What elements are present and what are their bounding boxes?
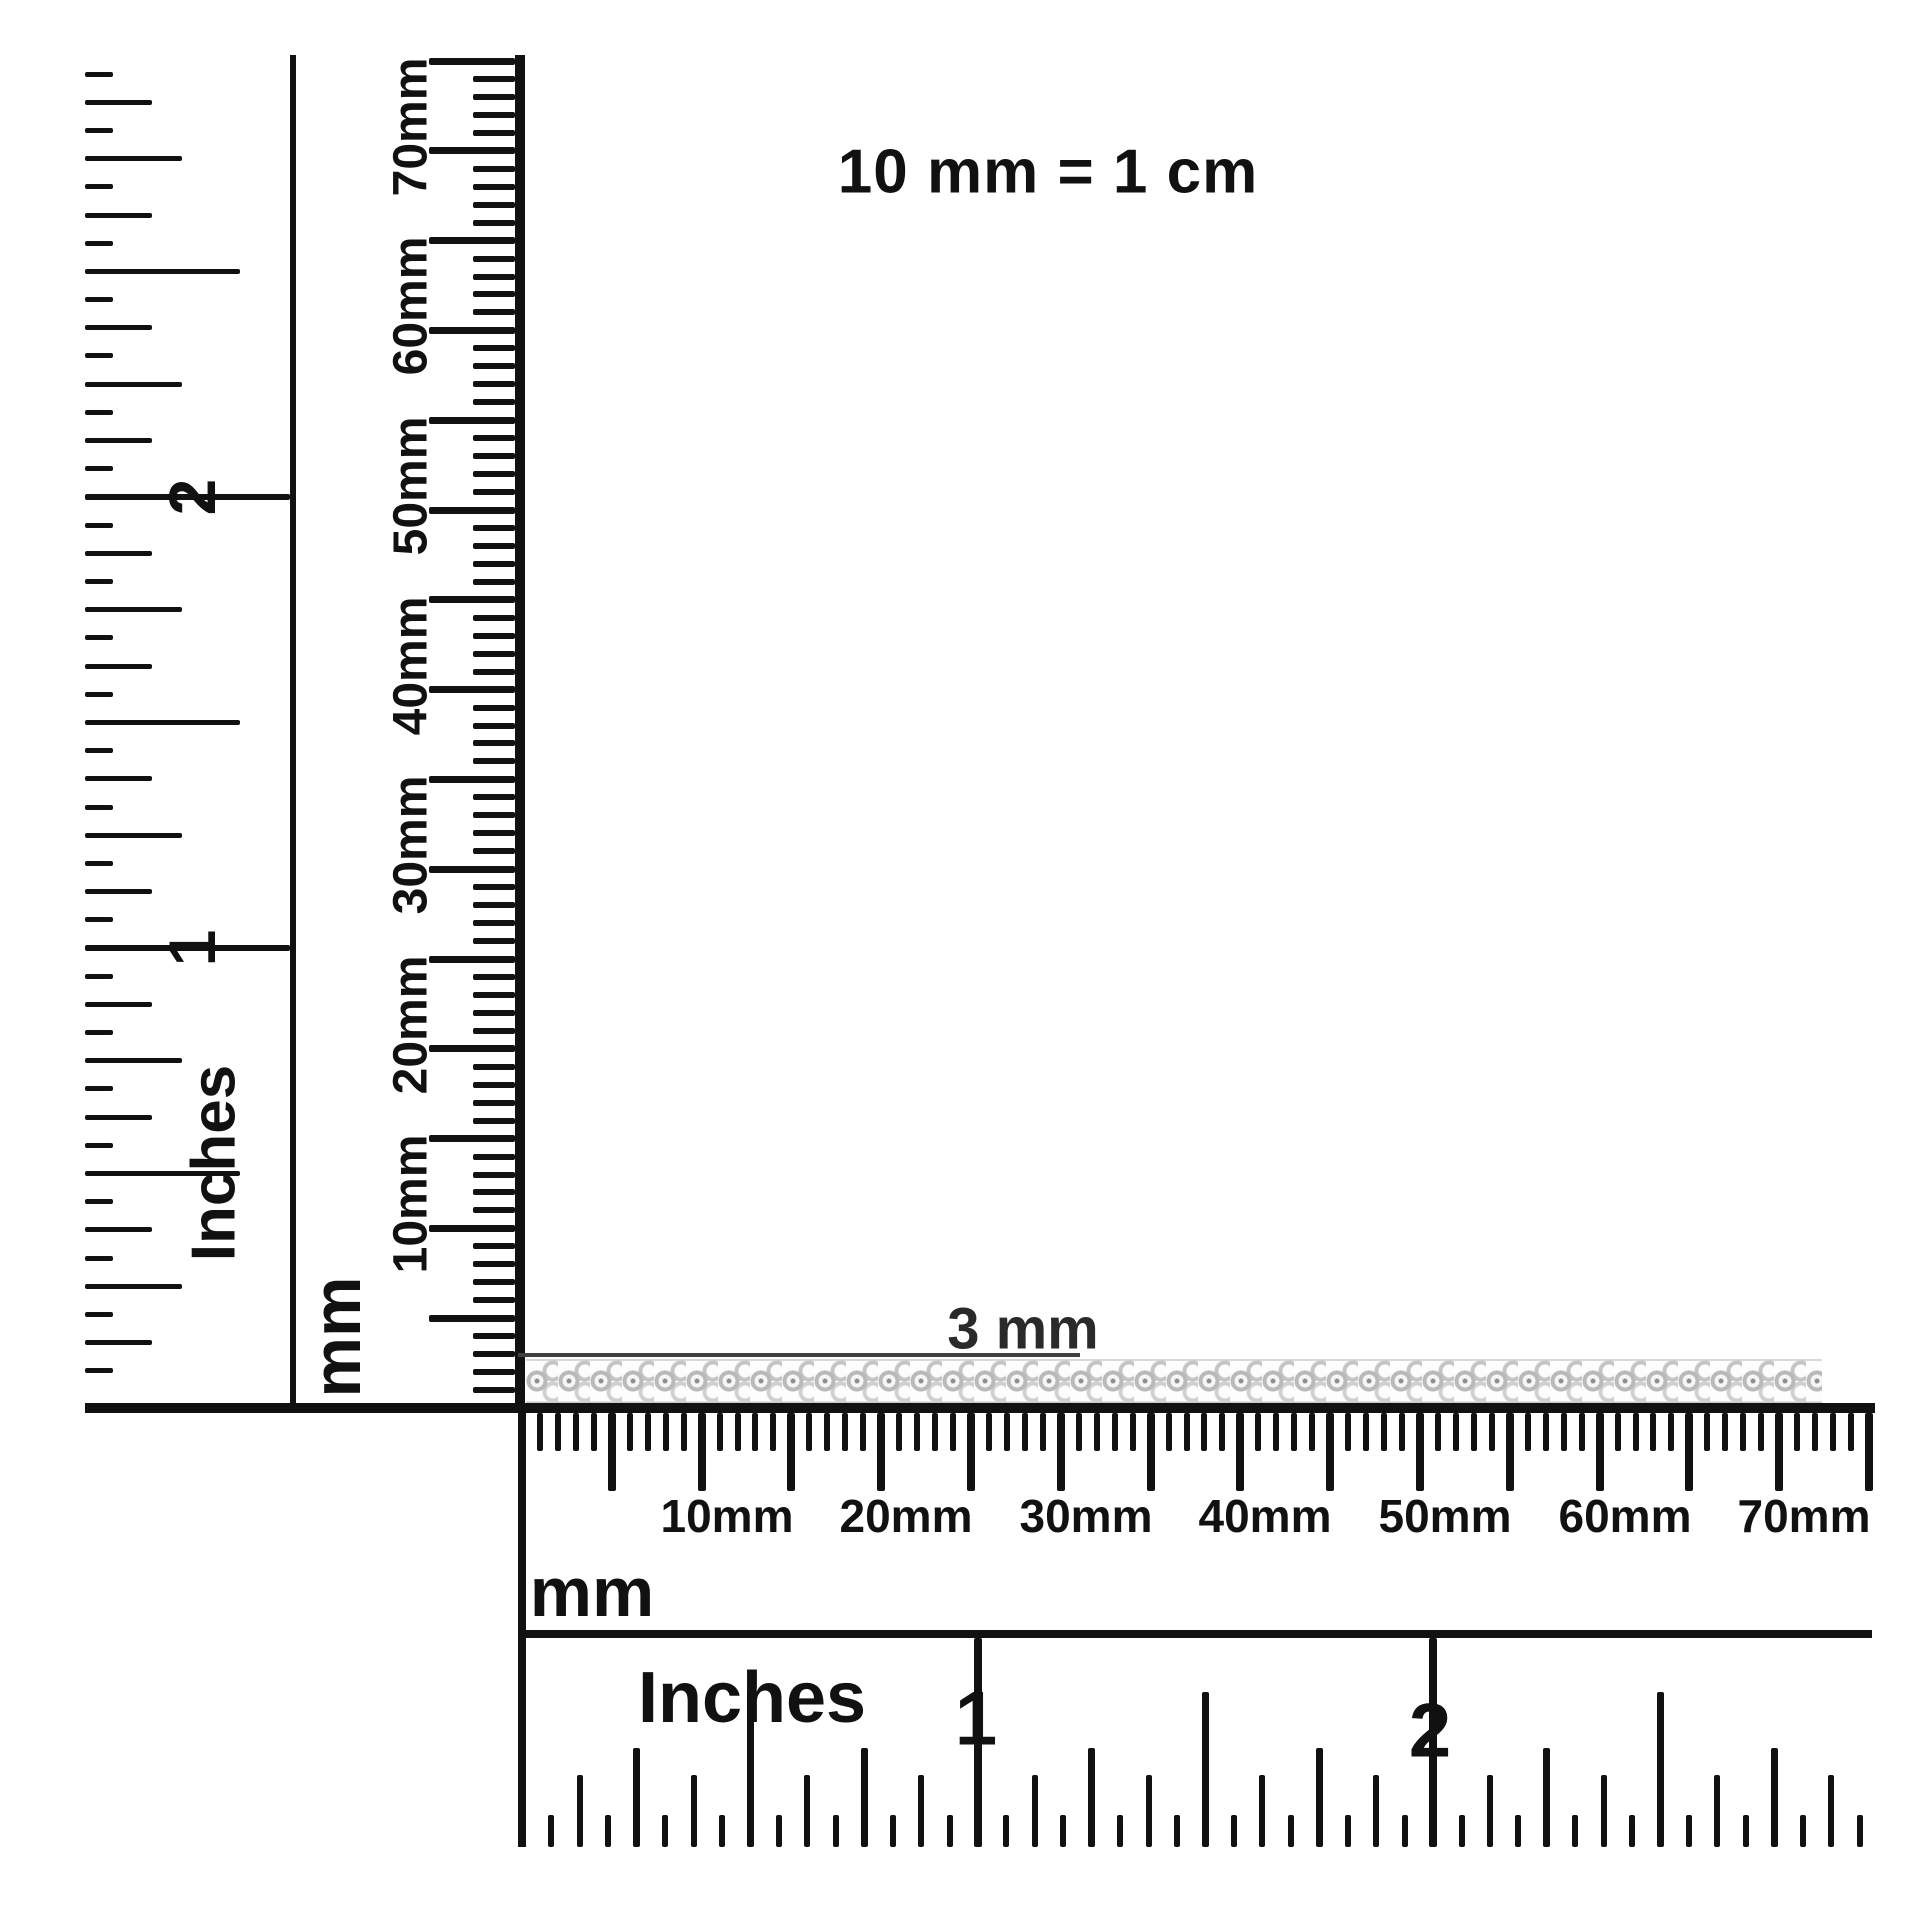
mm-tick-label: 20mm — [384, 956, 439, 1095]
mm-tick — [1309, 1413, 1315, 1451]
inch-tick — [691, 1775, 697, 1847]
mm-tick — [473, 705, 515, 711]
mm-tick — [1740, 1413, 1746, 1451]
inch-tick — [85, 1340, 152, 1345]
inch-tick — [85, 1030, 113, 1035]
mm-tick — [950, 1413, 956, 1451]
mm-tick-label: 10mm — [661, 1489, 794, 1543]
mm-tick — [473, 1154, 515, 1160]
inch-tick — [890, 1815, 896, 1847]
inch-tick — [918, 1775, 924, 1847]
horizontal-inch-ruler-edge — [522, 1630, 1872, 1638]
inch-tick — [1487, 1775, 1493, 1847]
inch-tick — [1032, 1775, 1038, 1847]
horizontal-inch-mark-1: 1 — [955, 1676, 997, 1763]
mm-tick — [473, 615, 515, 621]
mm-tick — [1022, 1413, 1028, 1451]
mm-tick — [1184, 1413, 1190, 1451]
inch-tick — [804, 1775, 810, 1847]
mm-tick — [473, 992, 515, 998]
mm-tick-label: 10mm — [384, 1135, 439, 1274]
mm-tick-label: 50mm — [1379, 1489, 1512, 1543]
inch-tick — [1515, 1815, 1521, 1847]
mm-tick — [473, 399, 515, 405]
mm-tick — [1112, 1413, 1118, 1451]
vertical-inch-ruler-edge — [290, 55, 296, 1404]
mm-tick — [1650, 1413, 1656, 1451]
mm-tick — [1219, 1413, 1225, 1451]
inch-tick — [1146, 1775, 1152, 1847]
mm-tick — [473, 1297, 515, 1303]
mm-tick — [1812, 1413, 1818, 1451]
inch-tick — [633, 1748, 640, 1847]
mm-tick — [932, 1413, 938, 1451]
mm-tick — [429, 58, 515, 65]
mm-tick — [1633, 1413, 1639, 1451]
inch-tick — [85, 776, 152, 781]
mm-tick — [473, 669, 515, 675]
mm-tick — [473, 220, 515, 226]
inch-tick — [85, 438, 152, 443]
inch-tick — [85, 720, 240, 725]
mm-tick — [1273, 1413, 1279, 1451]
inch-tick — [1402, 1815, 1408, 1847]
mm-tick — [591, 1413, 597, 1451]
inch-tick — [947, 1815, 953, 1847]
mm-tick — [1722, 1413, 1728, 1451]
mm-tick — [473, 1351, 515, 1357]
mm-tick — [967, 1413, 975, 1491]
mm-tick — [473, 453, 515, 459]
inch-tick — [85, 156, 182, 161]
mm-tick — [1399, 1413, 1405, 1451]
mm-tick — [698, 1413, 706, 1491]
mm-tick — [429, 1225, 515, 1232]
inch-tick — [85, 861, 113, 866]
mm-tick — [473, 489, 515, 495]
mm-tick — [473, 651, 515, 657]
inch-tick — [1572, 1815, 1578, 1847]
inch-tick — [1345, 1815, 1351, 1847]
inch-tick — [85, 1143, 113, 1148]
inch-tick — [85, 269, 240, 274]
inch-tick — [1174, 1815, 1180, 1847]
mm-tick — [473, 830, 515, 836]
mm-tick — [824, 1413, 830, 1451]
mm-tick — [752, 1413, 758, 1451]
mm-tick — [1471, 1413, 1477, 1451]
mm-tick-label: 20mm — [840, 1489, 973, 1543]
mm-tick — [1506, 1413, 1514, 1491]
mm-tick — [473, 381, 515, 387]
inch-tick — [85, 579, 113, 584]
mm-tick — [473, 543, 515, 549]
horizontal-mm-ruler-unit: mm — [530, 1552, 654, 1632]
mm-tick — [1830, 1413, 1836, 1451]
mm-tick — [1236, 1413, 1244, 1491]
mm-tick-label: 30mm — [1020, 1489, 1153, 1543]
mm-tick — [473, 920, 515, 926]
inch-tick — [1373, 1775, 1379, 1847]
inch-tick — [85, 1199, 113, 1204]
mm-tick — [787, 1413, 795, 1491]
mm-tick — [473, 274, 515, 280]
mm-tick — [473, 1118, 515, 1124]
mm-tick — [1416, 1413, 1424, 1491]
mm-tick — [914, 1413, 920, 1451]
inch-tick — [85, 1312, 113, 1317]
inch-tick — [85, 297, 113, 302]
mm-tick — [1076, 1413, 1082, 1451]
mm-tick — [1255, 1413, 1261, 1451]
mm-tick — [473, 76, 515, 82]
mm-tick-label: 60mm — [384, 237, 439, 376]
inch-tick — [1316, 1748, 1323, 1847]
mm-tick — [473, 1333, 515, 1339]
inch-tick — [85, 1284, 182, 1289]
mm-tick — [473, 633, 515, 639]
mm-tick — [1704, 1413, 1710, 1451]
mm-tick — [806, 1413, 812, 1451]
inch-tick — [85, 748, 113, 753]
mm-tick — [473, 291, 515, 297]
inch-tick — [85, 1115, 152, 1120]
mm-tick — [473, 1261, 515, 1267]
bracelet-width-label: 3 mm — [947, 1296, 1099, 1363]
mm-tick — [473, 256, 515, 262]
inch-tick — [85, 213, 152, 218]
inch-tick — [85, 551, 152, 556]
inch-tick — [662, 1815, 668, 1847]
mm-tick — [473, 561, 515, 567]
inch-tick — [85, 466, 113, 471]
vertical-mm-ruler-edge — [515, 55, 525, 1405]
mm-tick — [473, 974, 515, 980]
inch-tick — [1543, 1748, 1550, 1847]
inch-tick — [85, 1002, 152, 1007]
mm-tick — [1794, 1413, 1800, 1451]
inch-tick — [1003, 1815, 1009, 1847]
mm-tick — [429, 507, 515, 514]
mm-tick — [473, 1064, 515, 1070]
mm-tick — [1848, 1413, 1854, 1451]
mm-tick — [429, 866, 515, 873]
mm-tick — [429, 1315, 515, 1322]
mm-tick — [627, 1413, 633, 1451]
mm-tick — [1453, 1413, 1459, 1451]
jewelry-measurement-diagram: 10 mm = 1 cm 1 2 Inches 10mm20mm30mm40mm… — [0, 0, 1920, 1920]
inch-tick — [85, 523, 113, 528]
mm-tick — [1543, 1413, 1549, 1451]
inch-tick — [1743, 1815, 1749, 1847]
mm-tick — [429, 956, 515, 963]
mm-tick — [1345, 1413, 1351, 1451]
mm-tick — [1094, 1413, 1100, 1451]
mm-tick — [429, 417, 515, 424]
mm-tick — [1040, 1413, 1046, 1451]
mm-tick — [473, 1189, 515, 1195]
mm-tick — [986, 1413, 992, 1451]
mm-tick — [473, 1387, 515, 1393]
mm-tick — [473, 1279, 515, 1285]
mm-tick — [429, 686, 515, 693]
inch-tick — [548, 1815, 554, 1847]
mm-tick — [1561, 1413, 1567, 1451]
mm-tick-label: 50mm — [384, 417, 439, 556]
inch-tick — [719, 1815, 725, 1847]
mm-tick — [473, 94, 515, 100]
inch-tick — [1601, 1775, 1607, 1847]
mm-tick — [473, 848, 515, 854]
inch-tick — [1117, 1815, 1123, 1847]
inch-tick — [1629, 1815, 1635, 1847]
mm-tick-label: 40mm — [384, 597, 439, 736]
mm-tick — [473, 202, 515, 208]
mm-tick — [1596, 1413, 1604, 1491]
mm-tick — [896, 1413, 902, 1451]
mm-tick — [473, 1010, 515, 1016]
mm-tick — [681, 1413, 687, 1451]
mm-tick — [717, 1413, 723, 1451]
mm-tick-label: 30mm — [384, 776, 439, 915]
inch-tick — [85, 72, 113, 77]
mm-tick — [473, 1100, 515, 1106]
mm-tick — [473, 525, 515, 531]
mm-tick — [473, 130, 515, 136]
inch-tick — [85, 1058, 182, 1063]
mm-tick — [1363, 1413, 1369, 1451]
inch-tick — [85, 382, 182, 387]
inch-tick — [85, 353, 113, 358]
vertical-inch-mark-2: 2 — [154, 479, 230, 516]
mm-tick — [473, 902, 515, 908]
mm-tick — [770, 1413, 776, 1451]
mm-tick — [473, 435, 515, 441]
inch-tick — [85, 1086, 113, 1091]
inch-tick — [85, 325, 152, 330]
mm-tick — [1615, 1413, 1621, 1451]
mm-tick — [473, 345, 515, 351]
mm-tick — [1685, 1413, 1693, 1491]
inch-tick — [577, 1775, 583, 1847]
mm-tick-label: 60mm — [1559, 1489, 1692, 1543]
inch-tick — [85, 664, 152, 669]
mm-tick — [645, 1413, 651, 1451]
bottom-ruler-left-edge — [518, 1403, 526, 1847]
inch-tick — [85, 184, 113, 189]
inch-tick — [861, 1748, 868, 1847]
inch-tick — [1714, 1775, 1720, 1847]
inch-tick — [1828, 1775, 1834, 1847]
mm-tick — [608, 1413, 616, 1491]
mm-tick — [473, 363, 515, 369]
mm-tick — [860, 1413, 866, 1451]
mm-tick — [473, 723, 515, 729]
mm-tick — [473, 1172, 515, 1178]
mm-tick — [473, 1028, 515, 1034]
mm-tick — [429, 147, 515, 154]
mm-tick — [1435, 1413, 1441, 1451]
mm-tick — [429, 327, 515, 334]
mm-tick — [1865, 1413, 1873, 1491]
mm-tick — [1057, 1413, 1065, 1491]
scale-note: 10 mm = 1 cm — [838, 137, 1258, 208]
mm-tick — [473, 309, 515, 315]
inch-tick — [85, 917, 113, 922]
inch-tick — [1657, 1692, 1664, 1847]
mm-tick — [473, 579, 515, 585]
horizontal-inch-ruler-unit: Inches — [638, 1657, 866, 1739]
mm-tick — [473, 1207, 515, 1213]
mm-tick — [473, 758, 515, 764]
inch-tick — [1459, 1815, 1465, 1847]
mm-tick — [473, 938, 515, 944]
inch-tick — [1060, 1815, 1066, 1847]
mm-tick — [473, 112, 515, 118]
inch-tick — [85, 241, 113, 246]
mm-tick — [473, 166, 515, 172]
mm-tick-label: 40mm — [1199, 1489, 1332, 1543]
horizontal-inch-mark-2: 2 — [1409, 1688, 1451, 1775]
inch-tick — [85, 1368, 113, 1373]
mm-tick — [1381, 1413, 1387, 1451]
mm-tick — [1326, 1413, 1334, 1491]
inch-tick — [85, 1256, 113, 1261]
mm-tick — [1166, 1413, 1172, 1451]
inch-tick — [85, 410, 113, 415]
mm-tick — [1147, 1413, 1155, 1491]
inch-tick — [85, 128, 113, 133]
inch-tick — [85, 889, 152, 894]
mm-tick — [1201, 1413, 1207, 1451]
mm-tick — [473, 184, 515, 190]
inch-tick — [1857, 1815, 1863, 1847]
inch-tick — [85, 692, 113, 697]
horizontal-mm-ruler-edge — [85, 1403, 1875, 1413]
inch-tick — [605, 1815, 611, 1847]
inch-tick — [1771, 1748, 1778, 1847]
inch-tick — [1259, 1775, 1265, 1847]
inch-tick — [85, 805, 113, 810]
inch-tick — [85, 833, 182, 838]
inch-tick — [776, 1815, 782, 1847]
inch-tick — [1686, 1815, 1692, 1847]
mm-tick — [473, 794, 515, 800]
mm-tick — [1775, 1413, 1783, 1491]
mm-tick-label: 70mm — [384, 58, 439, 197]
mm-tick — [429, 1135, 515, 1142]
mm-tick — [1758, 1413, 1764, 1451]
mm-tick-label: 70mm — [1738, 1489, 1871, 1543]
diamond-bracelet-image — [526, 1359, 1822, 1404]
mm-tick — [429, 237, 515, 244]
mm-tick — [1525, 1413, 1531, 1451]
mm-tick — [877, 1413, 885, 1491]
inch-tick — [85, 1227, 152, 1232]
mm-tick — [429, 776, 515, 783]
vertical-inch-mark-1: 1 — [154, 930, 230, 967]
mm-tick — [473, 1082, 515, 1088]
mm-tick — [1668, 1413, 1674, 1451]
mm-tick — [663, 1413, 669, 1451]
inch-tick — [1088, 1748, 1095, 1847]
inch-tick — [85, 974, 113, 979]
mm-tick — [473, 884, 515, 890]
inch-tick — [85, 100, 152, 105]
inch-tick — [833, 1815, 839, 1847]
mm-tick — [735, 1413, 741, 1451]
mm-tick — [1291, 1413, 1297, 1451]
mm-tick — [473, 471, 515, 477]
inch-tick — [1231, 1815, 1237, 1847]
mm-tick — [1130, 1413, 1136, 1451]
vertical-mm-ruler-unit: mm — [298, 1277, 376, 1398]
mm-tick — [555, 1413, 561, 1451]
inch-tick — [1202, 1692, 1209, 1847]
mm-tick — [537, 1413, 543, 1451]
mm-tick — [842, 1413, 848, 1451]
mm-tick — [1004, 1413, 1010, 1451]
mm-tick — [1579, 1413, 1585, 1451]
inch-tick — [1288, 1815, 1294, 1847]
mm-tick — [473, 1243, 515, 1249]
mm-tick — [1489, 1413, 1495, 1451]
mm-tick — [429, 1045, 515, 1052]
inch-tick — [85, 607, 182, 612]
mm-tick — [473, 740, 515, 746]
mm-tick — [429, 596, 515, 603]
mm-tick — [473, 1369, 515, 1375]
inch-tick — [85, 635, 113, 640]
vertical-inch-ruler-unit: Inches — [179, 1065, 250, 1261]
mm-tick — [573, 1413, 579, 1451]
mm-tick — [473, 812, 515, 818]
inch-tick — [1800, 1815, 1806, 1847]
